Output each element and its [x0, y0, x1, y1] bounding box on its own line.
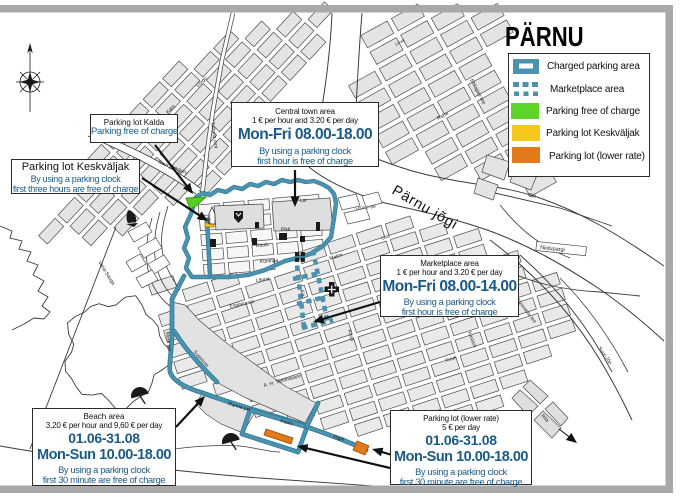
svg-text:Niidupargi: Niidupargi — [540, 245, 565, 254]
svg-text:Rüütli: Rüütli — [256, 242, 269, 249]
svg-text:Oja: Oja — [528, 192, 537, 200]
svg-text:Mere pst: Mere pst — [164, 332, 172, 353]
svg-text:Pikk: Pikk — [281, 226, 291, 233]
svg-text:Vana-Sauga: Vana-Sauga — [96, 260, 116, 287]
svg-text:Papli: Papli — [332, 434, 344, 443]
svg-text:Lai: Lai — [300, 198, 307, 204]
svg-text:Suur-Jõe: Suur-Jõe — [596, 346, 613, 366]
